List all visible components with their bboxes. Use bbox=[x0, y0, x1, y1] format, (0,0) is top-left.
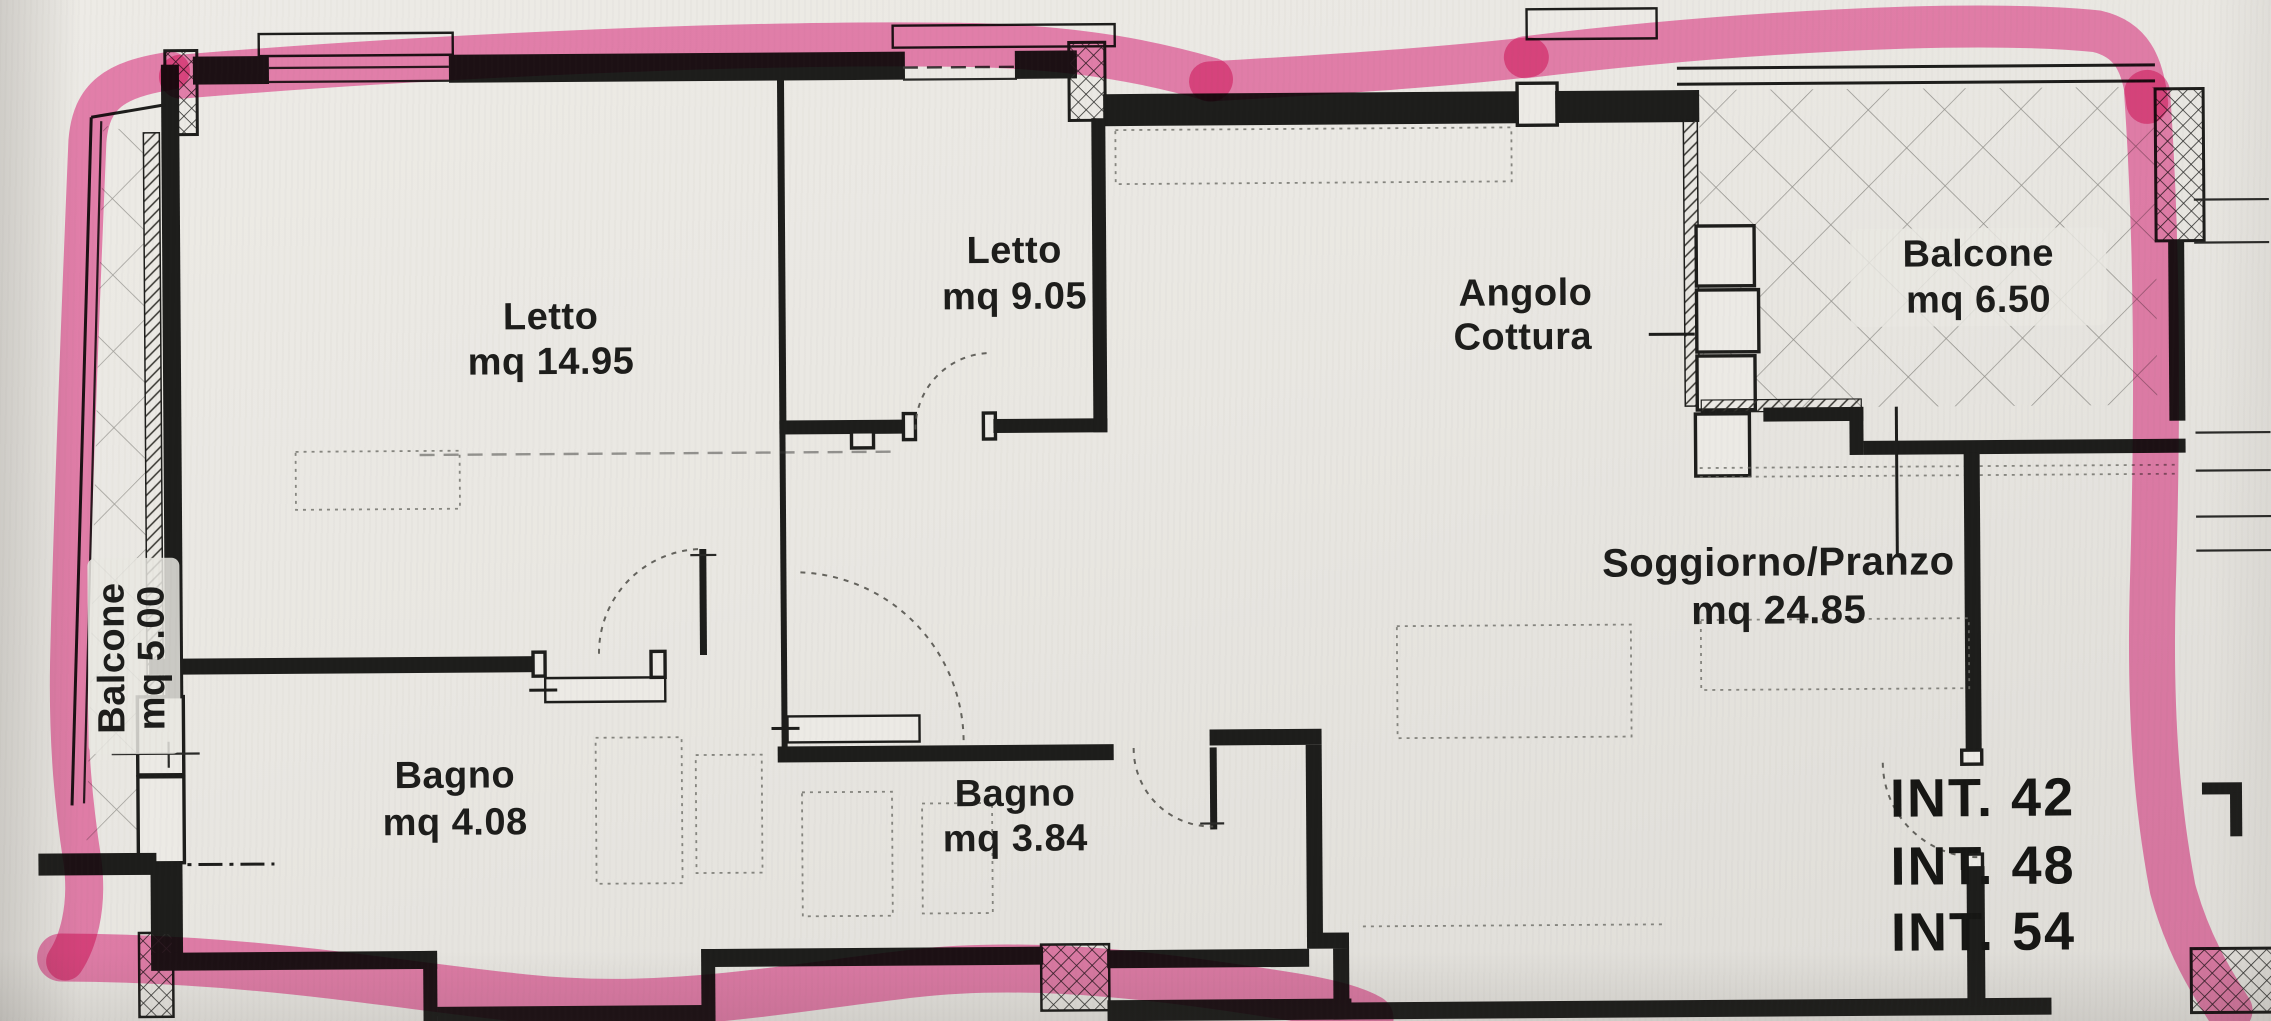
unit-number-1: INT. 42 bbox=[1890, 767, 2075, 828]
balcone-dx-area: mq 6.50 bbox=[1906, 279, 2051, 322]
room-label-bagno-1: Bagno mq 4.08 bbox=[382, 754, 528, 844]
balcone-dx-name: Balcone bbox=[1902, 233, 2054, 276]
unit-number-3: INT. 54 bbox=[1891, 901, 2076, 962]
room-label-bagno-2: Bagno mq 3.84 bbox=[942, 772, 1088, 860]
balcone-sx-name: Balcone bbox=[90, 582, 133, 734]
room-label-letto-2: Letto mq 9.05 bbox=[942, 229, 1088, 318]
room-label-balcone-left: Balcone mq 5.00 bbox=[87, 558, 180, 755]
unit-numbers: INT. 42 INT. 48 INT. 54 bbox=[1890, 767, 2076, 962]
bagno2-area: mq 3.84 bbox=[943, 817, 1088, 860]
room-label-soggiorno: Soggiorno/Pranzo mq 24.85 bbox=[1602, 539, 1955, 633]
letto2-name: Letto bbox=[966, 230, 1062, 273]
angolo-cottura-line1: Angolo bbox=[1458, 272, 1592, 315]
balcone-sx-area: mq 5.00 bbox=[131, 585, 174, 730]
soggiorno-area: mq 24.85 bbox=[1691, 588, 1867, 633]
room-label-angolo-cottura: Angolo Cottura bbox=[1453, 272, 1593, 359]
floor-plan-svg: Letto mq 14.95 Letto mq 9.05 Angolo Cott… bbox=[0, 0, 2271, 1021]
letto2-area: mq 9.05 bbox=[942, 275, 1087, 318]
letto1-name: Letto bbox=[503, 296, 599, 339]
letto1-area: mq 14.95 bbox=[467, 340, 634, 383]
angolo-cottura-line2: Cottura bbox=[1453, 316, 1592, 359]
bagno1-area: mq 4.08 bbox=[383, 801, 528, 844]
soggiorno-name: Soggiorno/Pranzo bbox=[1602, 539, 1955, 585]
dimension-ticks bbox=[2194, 199, 2271, 551]
room-label-balcone-right: Balcone mq 6.50 bbox=[1850, 227, 2107, 327]
floor-plan-page: Letto mq 14.95 Letto mq 9.05 Angolo Cott… bbox=[0, 0, 2271, 1021]
unit-number-2: INT. 48 bbox=[1890, 835, 2075, 896]
room-label-letto-1: Letto mq 14.95 bbox=[467, 295, 634, 383]
bagno2-name: Bagno bbox=[954, 772, 1075, 815]
bagno1-name: Bagno bbox=[394, 754, 515, 797]
